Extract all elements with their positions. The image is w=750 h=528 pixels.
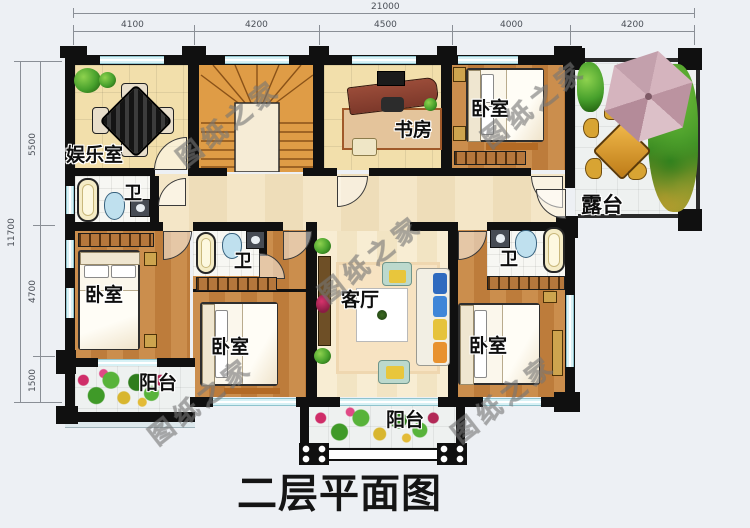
dim-tick [194,25,195,45]
wall [150,176,159,222]
dim-top-seg-1: 4100 [121,21,144,30]
window [66,186,74,214]
toilet-icon [515,230,537,258]
dim-tick [319,25,320,45]
pillow [84,265,109,278]
window [98,359,157,366]
window [66,240,74,268]
wardrobe [454,151,526,165]
window [352,56,416,64]
wall [303,168,337,176]
armchair-cushion [389,270,406,283]
wall [441,55,452,176]
pier [56,406,78,424]
nightstand [144,252,157,266]
room-label-study: 书房 [394,121,432,140]
dim-left-seg-3: 1500 [22,376,45,385]
window [100,56,164,64]
dim-tick [73,8,74,18]
wardrobe [487,276,565,290]
nightstand [453,126,466,141]
dim-tick [33,356,55,357]
room-label-bedroom-right: 卧室 [469,337,507,356]
nightstand [453,67,466,82]
wall [65,222,163,231]
sofa [416,268,450,366]
plant-icon [74,68,101,93]
armchair [378,360,410,384]
dim-tick [694,8,695,18]
dim-top-seg-3: 4500 [374,21,397,30]
pier [56,350,76,374]
window [566,295,574,367]
pillow [111,265,136,278]
window [458,56,518,64]
dim-tick [694,25,695,45]
dim-tick [73,25,74,45]
pier [678,209,702,231]
plant-icon [424,98,437,111]
sofa-cushion [433,319,447,340]
balcony-rail [308,448,458,461]
wall [369,168,443,176]
dim-tick [14,61,62,62]
wall [300,405,309,447]
plant-icon [99,72,116,88]
sofa-cushion [433,273,447,294]
umbrella-center [645,93,652,100]
nightstand [144,334,157,348]
dim-top-seg-5: 4200 [621,21,644,30]
balcony-post [299,443,329,465]
dim-left-seg-2: 4700 [22,287,45,296]
room-label-bedroom-left: 卧室 [85,286,123,305]
armchair-cushion [386,366,404,379]
nightstand [543,291,557,303]
dim-tick [33,225,55,226]
dim-left-total: 11700 [0,228,27,237]
sofa-cushion [433,342,447,363]
wardrobe [196,277,277,291]
window [66,288,74,318]
desk-monitor [377,71,405,86]
ottoman [352,138,377,156]
wall [157,358,195,367]
room-label-entertainment: 娱乐室 [66,146,123,165]
bathtub-icon [543,227,565,273]
dim-top-seg-4: 4000 [500,21,523,30]
plant-icon [314,238,331,254]
room-label-balcony-left: 阳台 [139,374,177,393]
dim-top-seg-line [73,31,695,32]
dim-tick [570,25,571,45]
window [225,56,289,64]
room-label-terrace: 露台 [581,195,623,216]
sink-icon [246,231,265,249]
bathtub-icon [77,178,99,222]
pier [554,392,580,412]
dim-tick [452,25,453,45]
balcony-door-sill [340,398,438,406]
wall [65,168,155,176]
table-plant [377,310,387,320]
room-label-bath1: 卫 [124,185,142,203]
terrace-chair [585,158,602,179]
headboard [80,252,140,265]
wardrobe [78,233,154,247]
dim-top-total-line [73,13,695,14]
desk-chair [381,97,404,112]
dim-top-seg-2: 4200 [245,21,268,30]
toilet-icon [104,192,125,220]
bathtub-icon [196,232,216,274]
plan-title: 二层平面图 [237,474,442,514]
sofa-cushion [433,296,447,317]
room-label-bath2: 卫 [234,253,252,271]
wall [443,168,531,176]
dim-top-total: 21000 [368,3,403,12]
dim-left-seg-1: 5500 [22,140,45,149]
wall [313,55,324,176]
wall [193,222,283,231]
sink-icon [490,229,510,248]
dim-left-seg-line [40,61,41,402]
plant-icon [314,348,331,364]
room-label-balcony-bottom: 阳台 [386,411,424,430]
room-label-bath3: 卫 [500,251,518,269]
floor-plan-canvas: 21000 4100 4200 4500 4000 4200 11700 550… [0,0,750,528]
terrace-chair [583,118,599,138]
dim-tick [14,402,62,403]
